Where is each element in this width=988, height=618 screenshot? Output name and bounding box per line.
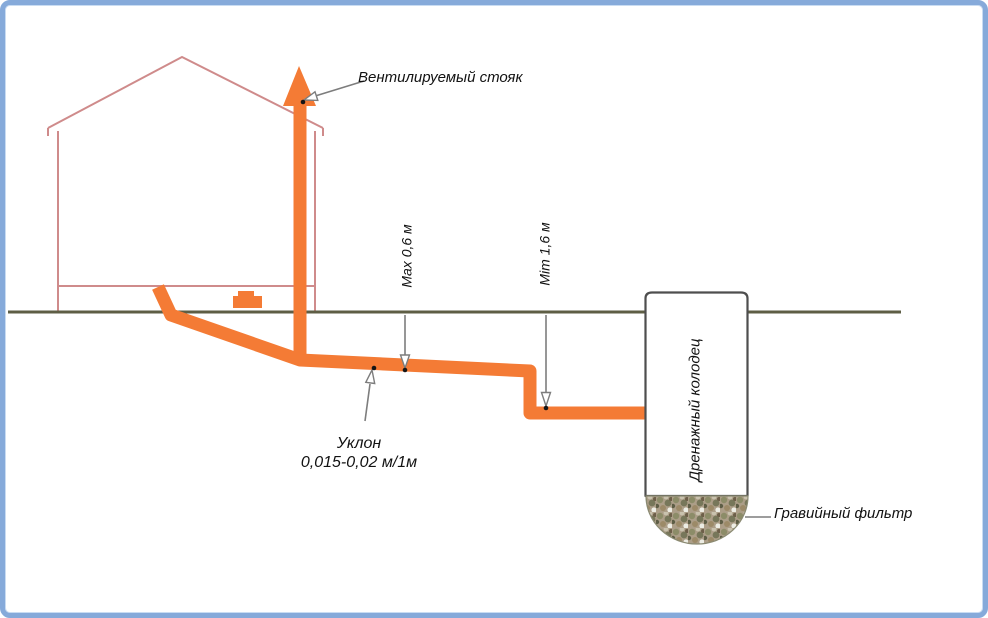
slope-label-tip-dot xyxy=(372,366,377,371)
diagram-frame: Вентилируемый стояк Max 0,6 м Mim 1,6 м … xyxy=(0,0,988,618)
max-depth-tip-dot xyxy=(403,368,408,373)
slope-label-arrowhead-icon xyxy=(366,370,375,384)
slope-label-leader xyxy=(365,384,370,421)
slope-label: Уклон 0,015-0,02 м/1м xyxy=(301,434,417,472)
gravel-filter-label: Гравийный фильтр xyxy=(774,504,912,523)
diagram-graphics xyxy=(0,0,988,618)
house-outline xyxy=(48,57,323,312)
vent-label-leader xyxy=(312,81,364,97)
max-depth-label: Max 0,6 м xyxy=(398,224,417,287)
slope-label-line2: 0,015-0,02 м/1м xyxy=(301,453,417,472)
drainage-well-label: Дренажный колодец xyxy=(686,338,705,481)
diagram-content: Вентилируемый стояк Max 0,6 м Mim 1,6 м … xyxy=(0,0,988,618)
vent-stack-label: Вентилируемый стояк xyxy=(358,68,523,87)
house-fixture-top xyxy=(238,291,254,297)
min-depth-label: Mim 1,6 м xyxy=(536,222,555,285)
min-depth-tip-dot xyxy=(544,406,549,411)
vent-label-tip-dot xyxy=(301,100,306,105)
house-fixture xyxy=(233,296,262,308)
min-depth-arrowhead-icon xyxy=(542,393,551,407)
house-roof xyxy=(48,57,323,128)
slope-label-line1: Уклон xyxy=(301,434,417,453)
sewer-pipe-run xyxy=(158,287,648,413)
gravel-filter-graphic xyxy=(646,496,748,544)
